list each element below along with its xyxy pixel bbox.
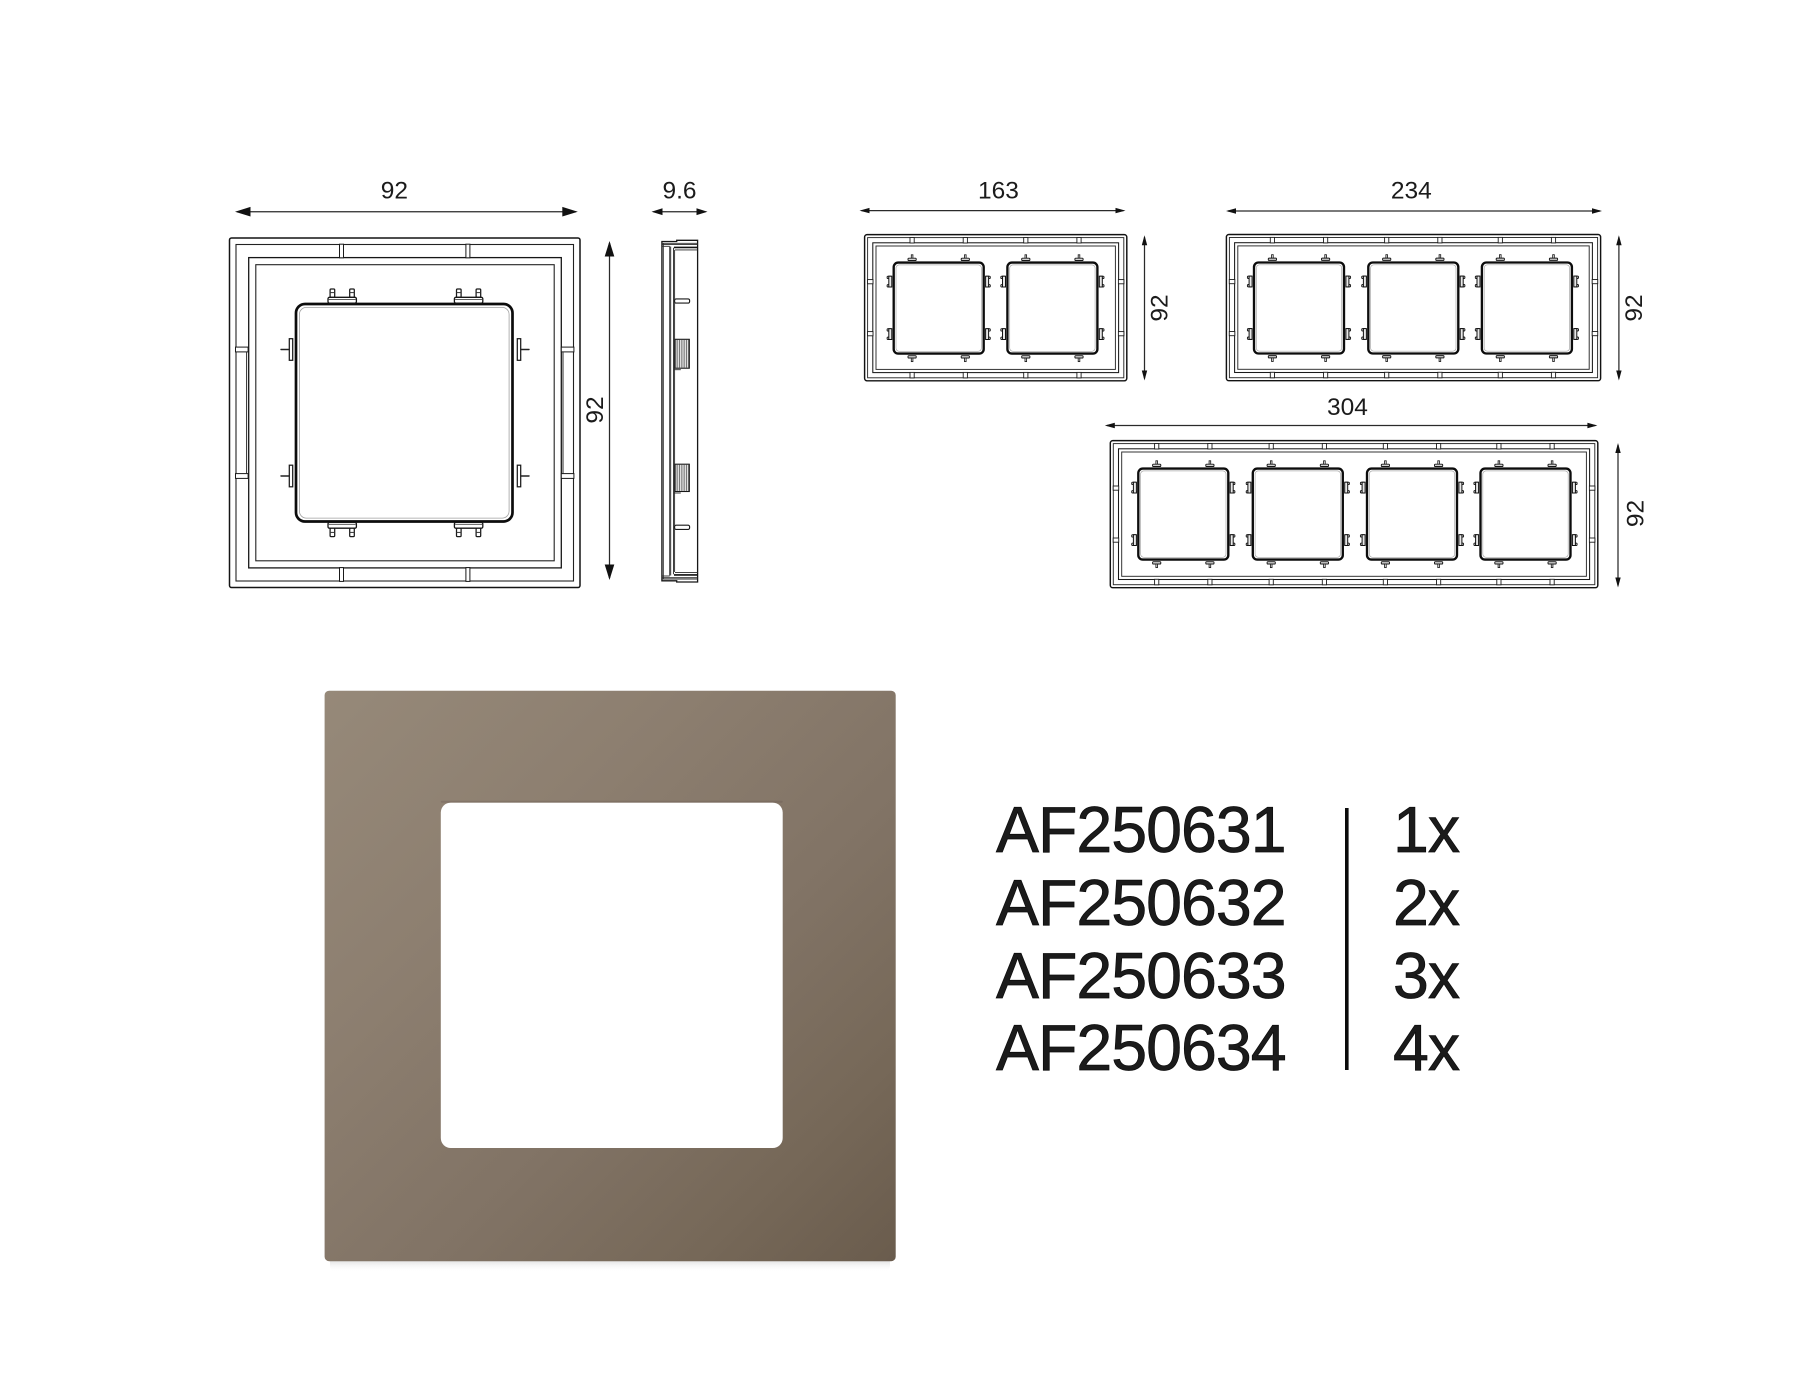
svg-text:92: 92 xyxy=(1623,500,1650,527)
svg-text:1x: 1x xyxy=(1393,794,1460,866)
svg-text:AF250633: AF250633 xyxy=(996,940,1286,1012)
svg-text:92: 92 xyxy=(1147,294,1174,321)
svg-text:4x: 4x xyxy=(1393,1012,1460,1084)
svg-text:163: 163 xyxy=(978,177,1019,204)
svg-text:3x: 3x xyxy=(1393,940,1460,1012)
svg-text:92: 92 xyxy=(381,177,408,204)
svg-text:234: 234 xyxy=(1391,177,1432,204)
svg-text:AF250631: AF250631 xyxy=(996,794,1286,866)
svg-text:9.6: 9.6 xyxy=(662,177,696,204)
svg-text:304: 304 xyxy=(1327,394,1368,421)
svg-text:92: 92 xyxy=(582,396,609,423)
svg-text:AF250634: AF250634 xyxy=(996,1012,1286,1084)
svg-text:AF250632: AF250632 xyxy=(996,867,1286,939)
svg-text:2x: 2x xyxy=(1393,867,1460,939)
svg-text:92: 92 xyxy=(1621,294,1648,321)
